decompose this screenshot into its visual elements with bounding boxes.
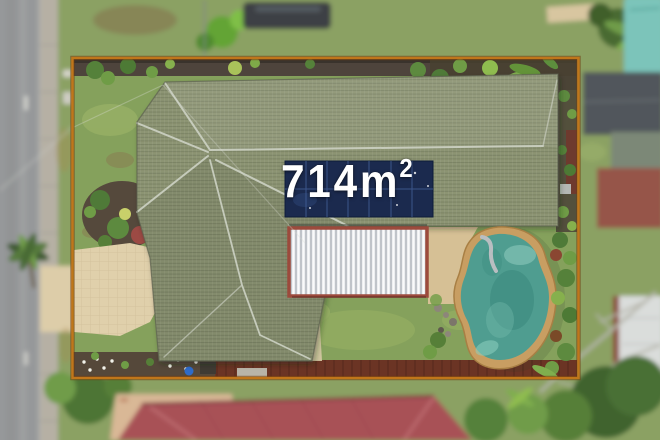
utility-pole <box>203 0 206 57</box>
pergola-roof <box>289 224 427 297</box>
storage-box <box>200 362 216 374</box>
area-value: 714m <box>281 155 400 207</box>
road <box>0 0 40 440</box>
neighbor-shed <box>583 72 660 135</box>
yellow-plant <box>119 208 131 220</box>
area-label: 714m2 <box>281 158 414 204</box>
aerial-scene <box>0 0 660 440</box>
driveway-crossing <box>40 266 74 332</box>
side-garden-right <box>556 76 578 232</box>
neighbor-teal-roof <box>624 0 660 80</box>
road-centerline <box>24 96 28 110</box>
aerial-photo: 714m2 <box>0 0 660 440</box>
driveway <box>74 243 162 336</box>
blue-bucket <box>185 367 194 376</box>
area-superscript: 2 <box>399 153 412 183</box>
swimming-pool <box>454 227 565 372</box>
road-centerline <box>24 352 28 365</box>
roof-upper-plane <box>165 74 558 150</box>
ac-unit <box>560 184 571 194</box>
